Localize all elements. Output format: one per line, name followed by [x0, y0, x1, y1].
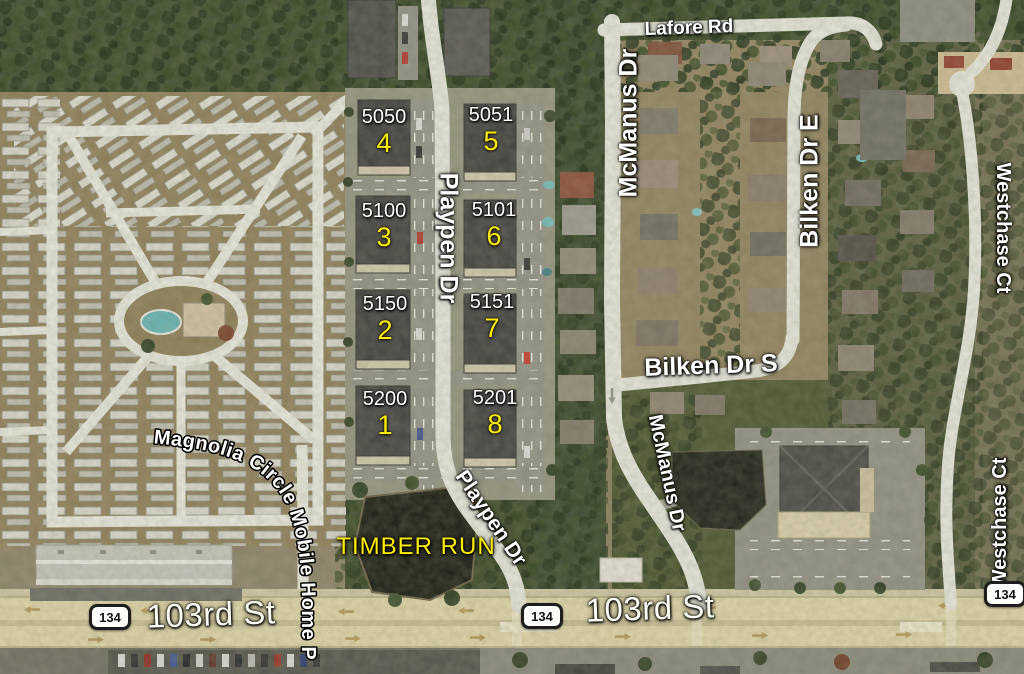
street-label-103rd-st-east: 103rd St	[585, 589, 715, 626]
building-unit-number: 8	[487, 411, 502, 438]
building-unit-number: 2	[377, 317, 392, 344]
street-label-lafore-rd: Lafore Rd	[644, 17, 733, 39]
building-address: 5100	[362, 201, 407, 221]
building-address: 5151	[470, 292, 515, 312]
route-number: 134	[531, 609, 553, 624]
street-label-westchase-ct-north: Westchase Ct	[993, 163, 1013, 294]
street-label-westchase-ct-south: Westchase Ct	[990, 458, 1010, 589]
building-unit-number: 4	[376, 130, 391, 157]
building-label-5051: 5051 5	[469, 105, 514, 155]
route-shield-134-center: 134	[521, 603, 563, 629]
building-unit-number: 7	[484, 315, 499, 342]
route-number: 134	[99, 610, 121, 625]
building-address: 5051	[469, 105, 514, 125]
building-address: 5200	[363, 389, 408, 409]
street-label-bilken-dr-e: Bilken Dr E	[798, 114, 823, 247]
street-label-103rd-st-west: 103rd St	[146, 595, 276, 632]
route-shield-134-west: 134	[89, 604, 131, 630]
route-number: 134	[994, 587, 1016, 602]
building-unit-number: 1	[377, 412, 392, 439]
street-label-mcmanus-dr-north: McManus Dr	[617, 49, 642, 198]
poi-label-timber-run: TIMBER RUN	[336, 535, 495, 559]
building-label-5200: 5200 1	[363, 389, 408, 439]
building-label-5101: 5101 6	[472, 200, 517, 250]
building-label-5151: 5151 7	[470, 292, 515, 342]
building-address: 5101	[472, 200, 517, 220]
building-address: 5201	[473, 388, 518, 408]
building-label-5201: 5201 8	[473, 388, 518, 438]
street-label-bilken-dr-s: Bilken Dr S	[644, 351, 778, 381]
building-unit-number: 6	[486, 223, 501, 250]
building-label-5050: 5050 4	[362, 107, 407, 157]
building-address: 5050	[362, 107, 407, 127]
street-label-playpen-dr-north: Playpen Dr	[436, 173, 461, 304]
route-shield-134-east: 134	[984, 581, 1024, 607]
building-unit-number: 3	[376, 224, 391, 251]
building-unit-number: 5	[483, 128, 498, 155]
building-address: 5150	[363, 294, 408, 314]
building-label-5150: 5150 2	[363, 294, 408, 344]
aerial-map-canvas[interactable]: Magnolia Circle Mobile Home Park Lafore …	[0, 0, 1024, 674]
building-label-5100: 5100 3	[362, 201, 407, 251]
